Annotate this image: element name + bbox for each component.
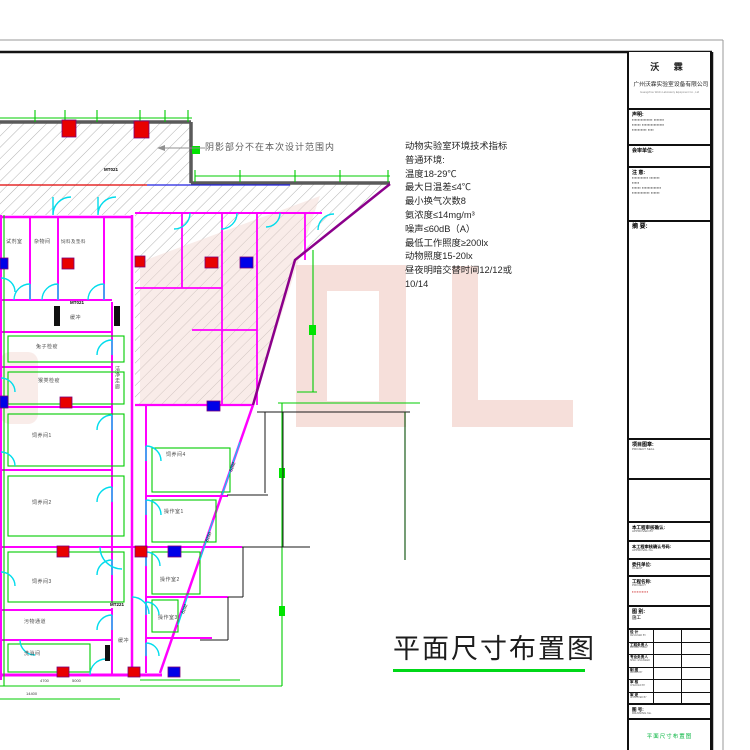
title-block-project-name: 工程名称: PROJECT ▪▪▪▪▪▪▪▪▪▪ <box>629 577 710 607</box>
spec-block: 动物实验室环境技术指标 普通环境: 温度18-29℃ 最大日温差≤4℃ 最小换气… <box>405 140 512 292</box>
dimension-lines-black <box>200 412 410 640</box>
room-label: 饲养间1 <box>32 434 52 439</box>
room-label: 兔子检疫 <box>36 345 58 350</box>
room-label: 污物通道 <box>24 620 46 625</box>
equipment-tag: MT221 <box>110 603 124 608</box>
out-of-scope-note: 阴影部分不在本次设计范围内 <box>205 140 335 153</box>
room-label: 试剂室 <box>6 240 23 245</box>
title-block-drawing-no: 图 号: DRAWING No. <box>629 705 710 720</box>
equipment-tag: MT021 <box>70 301 84 306</box>
room-label: 饲养间3 <box>32 580 52 585</box>
room-label-corridor: 洁净走廊 <box>114 366 119 390</box>
company-logo: 沃 霖 <box>632 60 707 73</box>
title-block-approval-no: 本工程审核确认号码: APPROVAL No. <box>629 542 710 560</box>
room-label: 缓冲 <box>70 316 81 321</box>
spec-title: 动物实验室环境技术指标 <box>405 140 512 154</box>
title-block-sign-table: 设 计DESIGNED BY 工程负责人PROJECT MGR. 专业负责人SP… <box>629 630 710 705</box>
title-block-notice: 注 意: ▪▪▪▪▪▪▪▪▪▪▪ ▪▪▪▪▪▪▪ ▪▪▪▪▪ ▪▪▪▪▪▪ ▪▪… <box>629 168 710 222</box>
svg-text:6250: 6250 <box>204 531 212 543</box>
room-label: 饲料及垫料 <box>61 240 86 245</box>
title-block-statement: 声明: ▪▪▪▪▪▪▪▪▪▪▪▪▪▪ ▪▪▪▪▪▪▪ ▪▪▪▪▪▪ ▪▪▪▪▪▪… <box>629 110 710 146</box>
svg-text:6292: 6292 <box>180 603 188 615</box>
company-name-en: Guangzhou Wolin Laboratory Equipment Co.… <box>636 90 704 94</box>
drawing-sheet: 6292 6250 6292 阴影部分不在本次设计范围内 动物实验室环境技术指标… <box>0 0 750 750</box>
vertical-label <box>114 306 120 326</box>
title-block-logo: 沃 霖 广州沃霖实验室设备有限公司 Guangzhou Wolin Labora… <box>629 52 710 110</box>
room-label: 洗消间 <box>24 652 41 657</box>
dimension-text: 5000 <box>72 679 81 683</box>
drawing-title: 平面尺寸布置图 <box>393 627 585 672</box>
equipment-tag: MT021 <box>104 168 118 173</box>
room-label: 缓冲 <box>118 639 129 644</box>
dimension-text: 4700 <box>40 679 49 683</box>
room-label: 操作室1 <box>164 510 184 515</box>
room-label: 杂物间 <box>34 240 51 245</box>
title-block-drawing-name: 平面尺寸布置图 <box>629 720 710 750</box>
room-label: 饲养间4 <box>166 453 186 458</box>
title-block: 沃 霖 广州沃霖实验室设备有限公司 Guangzhou Wolin Labora… <box>627 52 712 750</box>
room-label: 操作室2 <box>160 578 180 583</box>
vertical-label <box>105 645 110 661</box>
title-block-abstract: 摘 要: <box>629 222 710 440</box>
title-block-client: 委托单位: CLIENT <box>629 560 710 577</box>
room-label: 饲养间2 <box>32 501 52 506</box>
dimension-text: 14400 <box>26 692 37 696</box>
company-name-cn: 广州沃霖实验室设备有限公司 <box>634 79 706 88</box>
room-label: 猴类检疫 <box>38 379 60 384</box>
title-block-empty-box <box>629 480 710 523</box>
vertical-label <box>54 306 60 326</box>
project-name-value: ▪▪▪▪▪▪▪▪▪▪ <box>632 590 707 594</box>
title-block-approved: 本工程审核确认: APPROVED BY <box>629 523 710 542</box>
title-block-category: 图 别: 施工 <box>629 607 710 630</box>
room-label: 操作室3 <box>158 616 178 621</box>
drawing-name-green: 平面尺寸布置图 <box>632 732 707 740</box>
title-block-review: 会审单位: <box>629 146 710 168</box>
title-block-project-seal: 项目图章: PROJECT SEAL <box>629 440 710 480</box>
